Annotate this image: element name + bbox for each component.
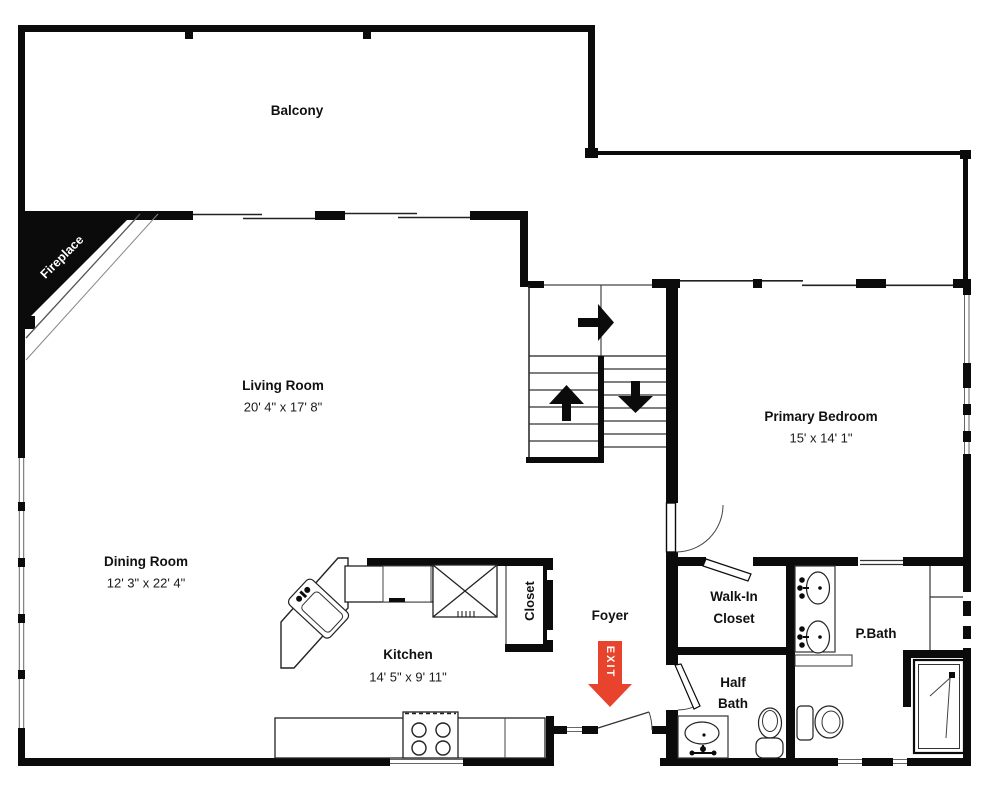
walkin-closet-door xyxy=(703,559,751,581)
bedroom-door xyxy=(667,503,724,552)
pbath-label: P.Bath xyxy=(855,623,896,645)
shower-icon xyxy=(914,660,964,753)
bedroom-north-wall xyxy=(652,279,970,288)
walkin-closet-line1: Walk-In xyxy=(710,586,758,608)
balcony-label: Balcony xyxy=(271,100,324,122)
toilet-icon xyxy=(797,706,843,740)
dining-room-dims: 12' 3" x 22' 4" xyxy=(107,576,186,591)
half-bath-line1: Half xyxy=(718,672,748,693)
half-bath-line2: Bath xyxy=(718,693,748,714)
closet-label: Closet xyxy=(519,581,541,621)
half-bath-fixtures xyxy=(678,708,783,758)
living-room-dims: 20' 4" x 17' 8" xyxy=(244,400,323,415)
window-mullion xyxy=(18,614,25,623)
primary-bedroom-label: Primary Bedroom xyxy=(764,406,877,428)
fireplace xyxy=(25,211,158,360)
pbath-fixtures xyxy=(795,566,964,753)
walkin-closet-label: Walk-In Closet xyxy=(710,586,758,630)
window xyxy=(963,592,971,648)
kitchen-dims: 14' 5" x 9' 11" xyxy=(369,670,447,685)
window-mullion xyxy=(18,670,25,679)
west-wall xyxy=(18,211,25,766)
stove-icon xyxy=(403,712,458,758)
staircase xyxy=(526,281,666,463)
pbath-pocket-door xyxy=(860,561,903,565)
toilet-icon xyxy=(756,708,783,758)
linen-closet xyxy=(930,566,963,650)
window xyxy=(963,388,971,454)
living-room-label: Living Room xyxy=(242,375,324,397)
kitchen-label: Kitchen xyxy=(383,644,433,666)
entry-door xyxy=(598,712,652,730)
dishwasher xyxy=(383,566,431,602)
half-bath-label: Half Bath xyxy=(718,672,748,714)
half-bath-door xyxy=(675,664,700,710)
balcony-walls xyxy=(18,25,971,283)
primary-bedroom-dims: 15' x 14' 1" xyxy=(789,431,852,446)
exit-label: EXIT xyxy=(599,646,621,678)
dining-room-label: Dining Room xyxy=(104,551,188,573)
window xyxy=(963,295,971,363)
stair-treads xyxy=(529,369,666,447)
floor-plan: Balcony Living Room 20' 4" x 17' 8" Dini… xyxy=(0,0,1000,798)
arrow-right-icon xyxy=(578,304,614,341)
walkin-closet-line2: Closet xyxy=(710,608,758,630)
foyer-label: Foyer xyxy=(592,605,629,627)
window-mullion xyxy=(18,502,25,511)
pantry-box xyxy=(433,565,497,617)
floor-plan-drawing xyxy=(0,0,1000,798)
window-mullion xyxy=(18,558,25,567)
